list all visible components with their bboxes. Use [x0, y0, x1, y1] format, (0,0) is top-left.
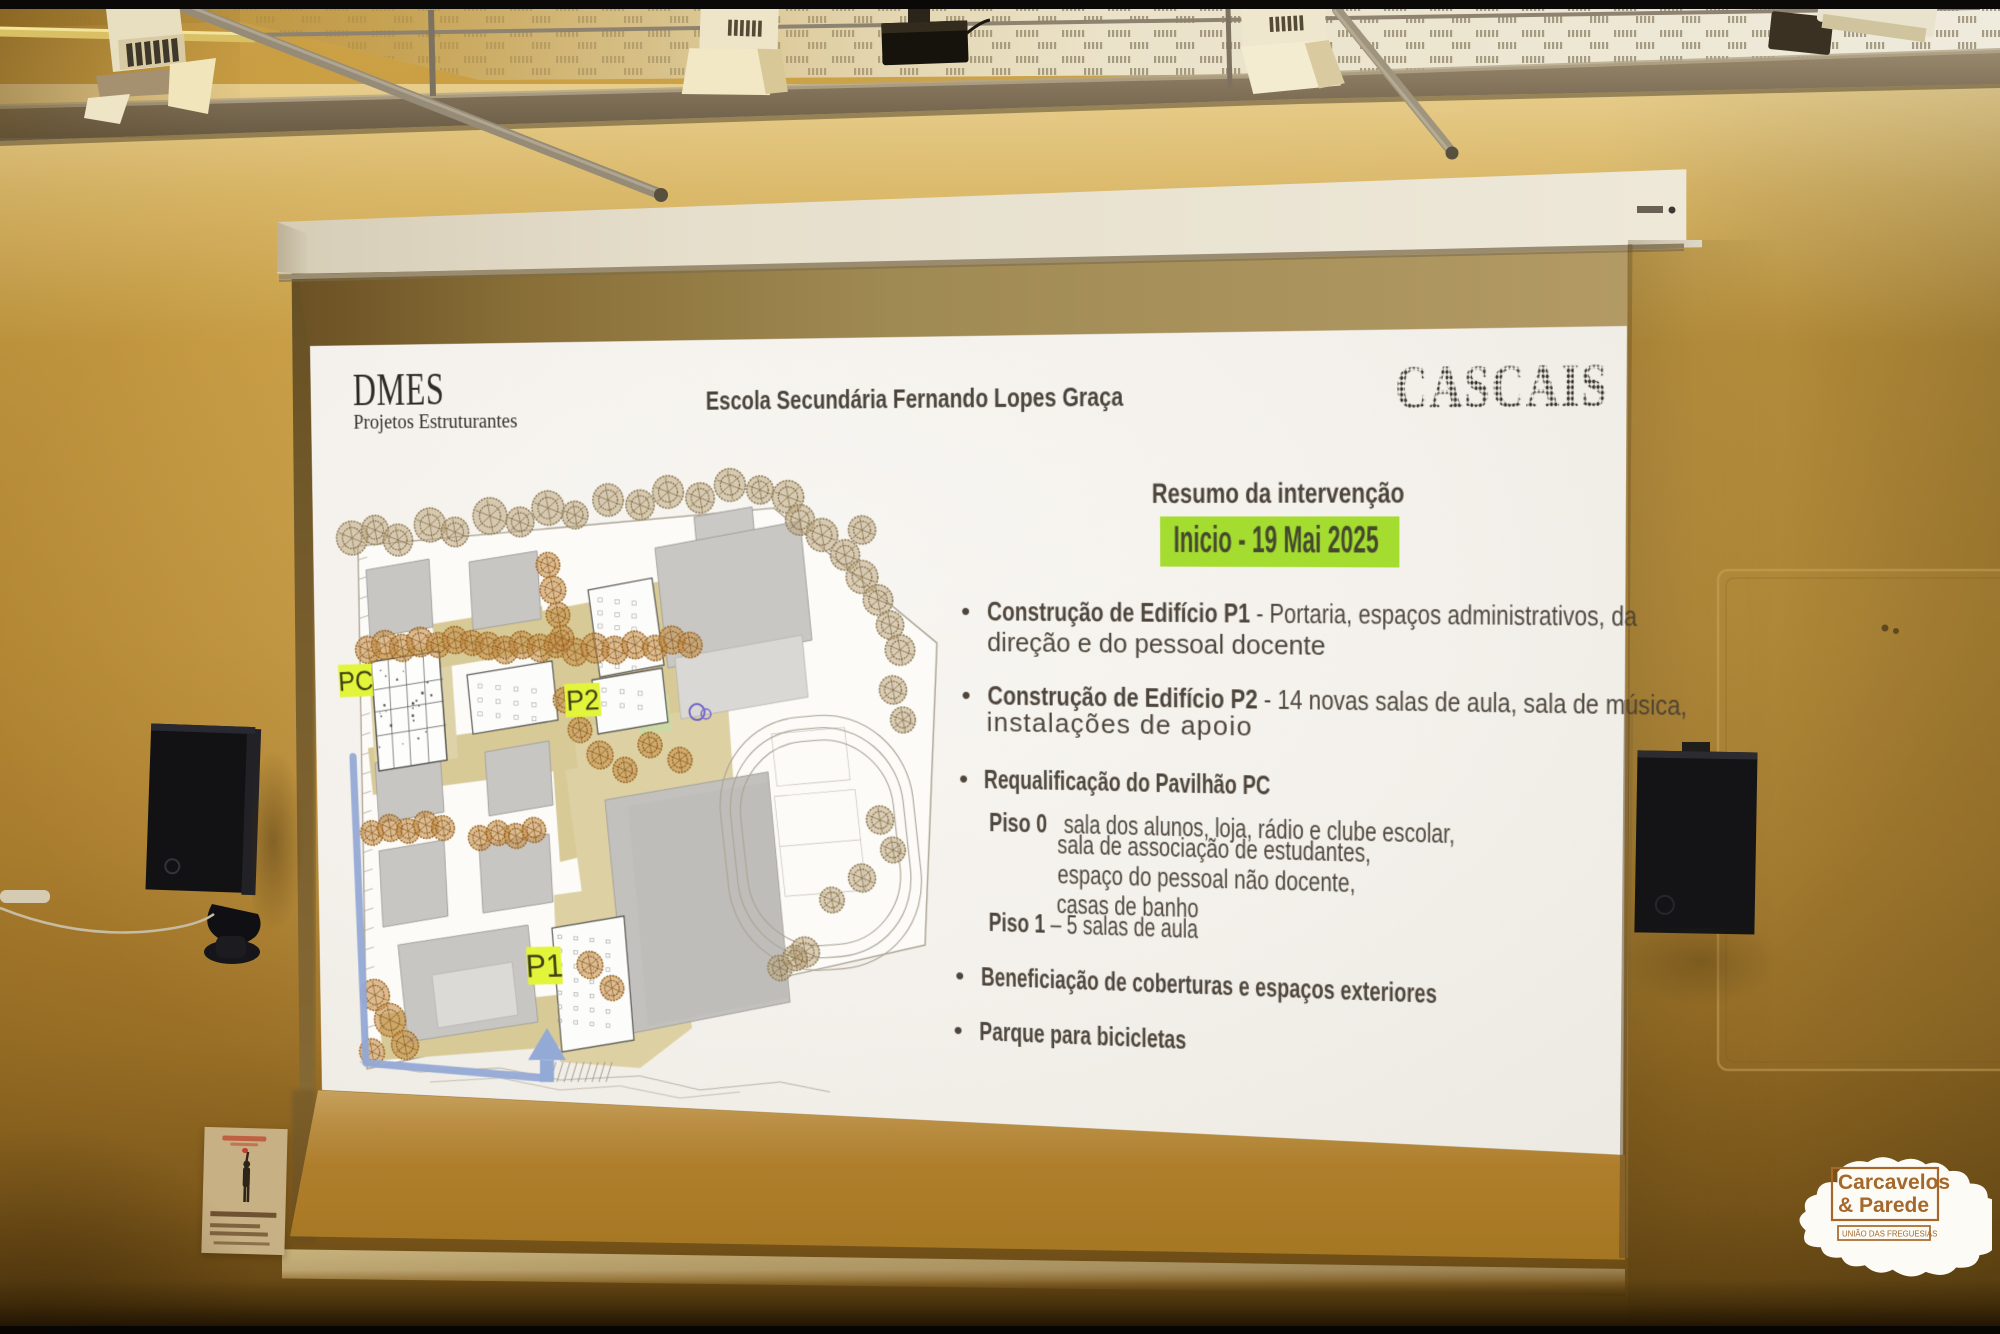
svg-text:UNIÃO DAS FREGUESIAS: UNIÃO DAS FREGUESIAS: [1842, 1230, 1937, 1239]
svg-text:& Parede: & Parede: [1838, 1194, 1929, 1217]
svg-text:Carcavelos: Carcavelos: [1838, 1171, 1950, 1194]
